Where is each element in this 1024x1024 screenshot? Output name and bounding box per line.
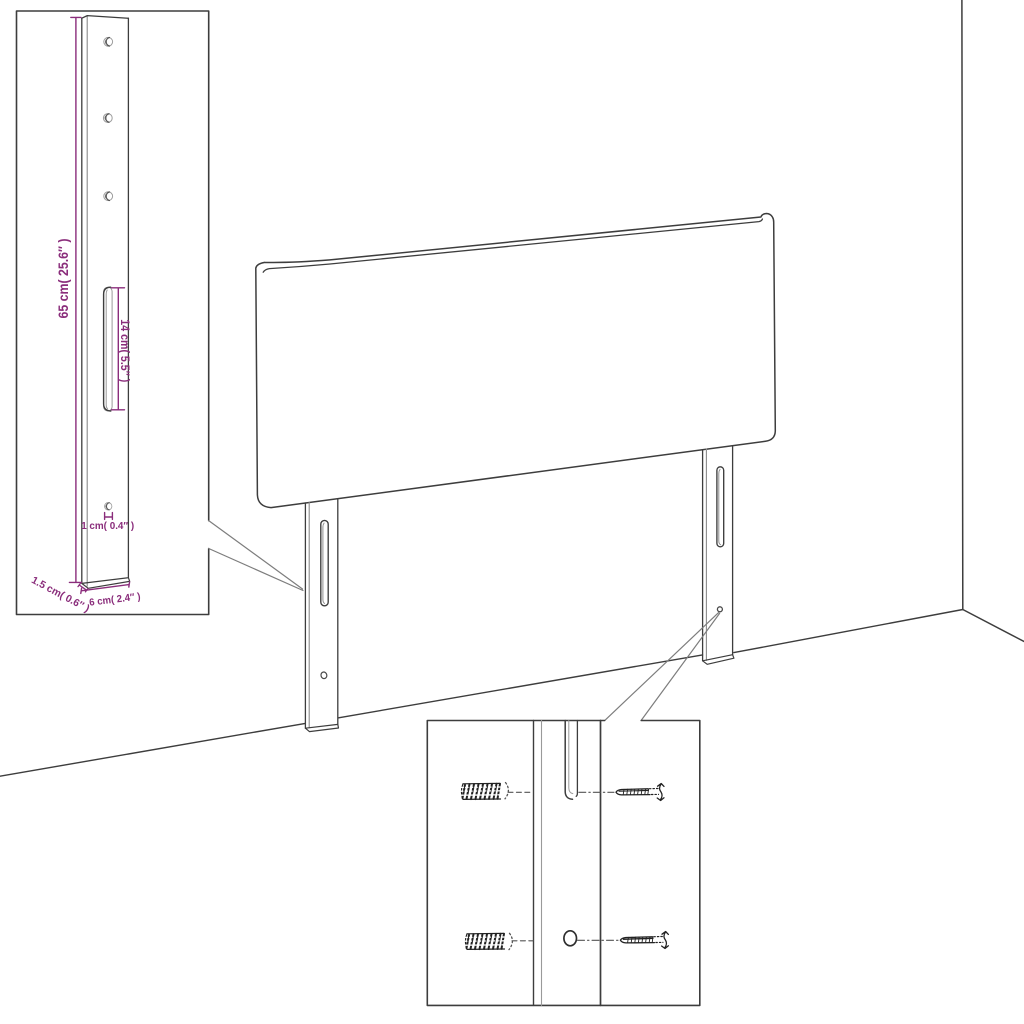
svg-text:65 cm( 25.6″ ): 65 cm( 25.6″ ) <box>56 239 71 319</box>
svg-text:14 cm( 5.5″ ): 14 cm( 5.5″ ) <box>118 319 130 382</box>
svg-text:1 cm( 0.4″ ): 1 cm( 0.4″ ) <box>81 521 134 532</box>
